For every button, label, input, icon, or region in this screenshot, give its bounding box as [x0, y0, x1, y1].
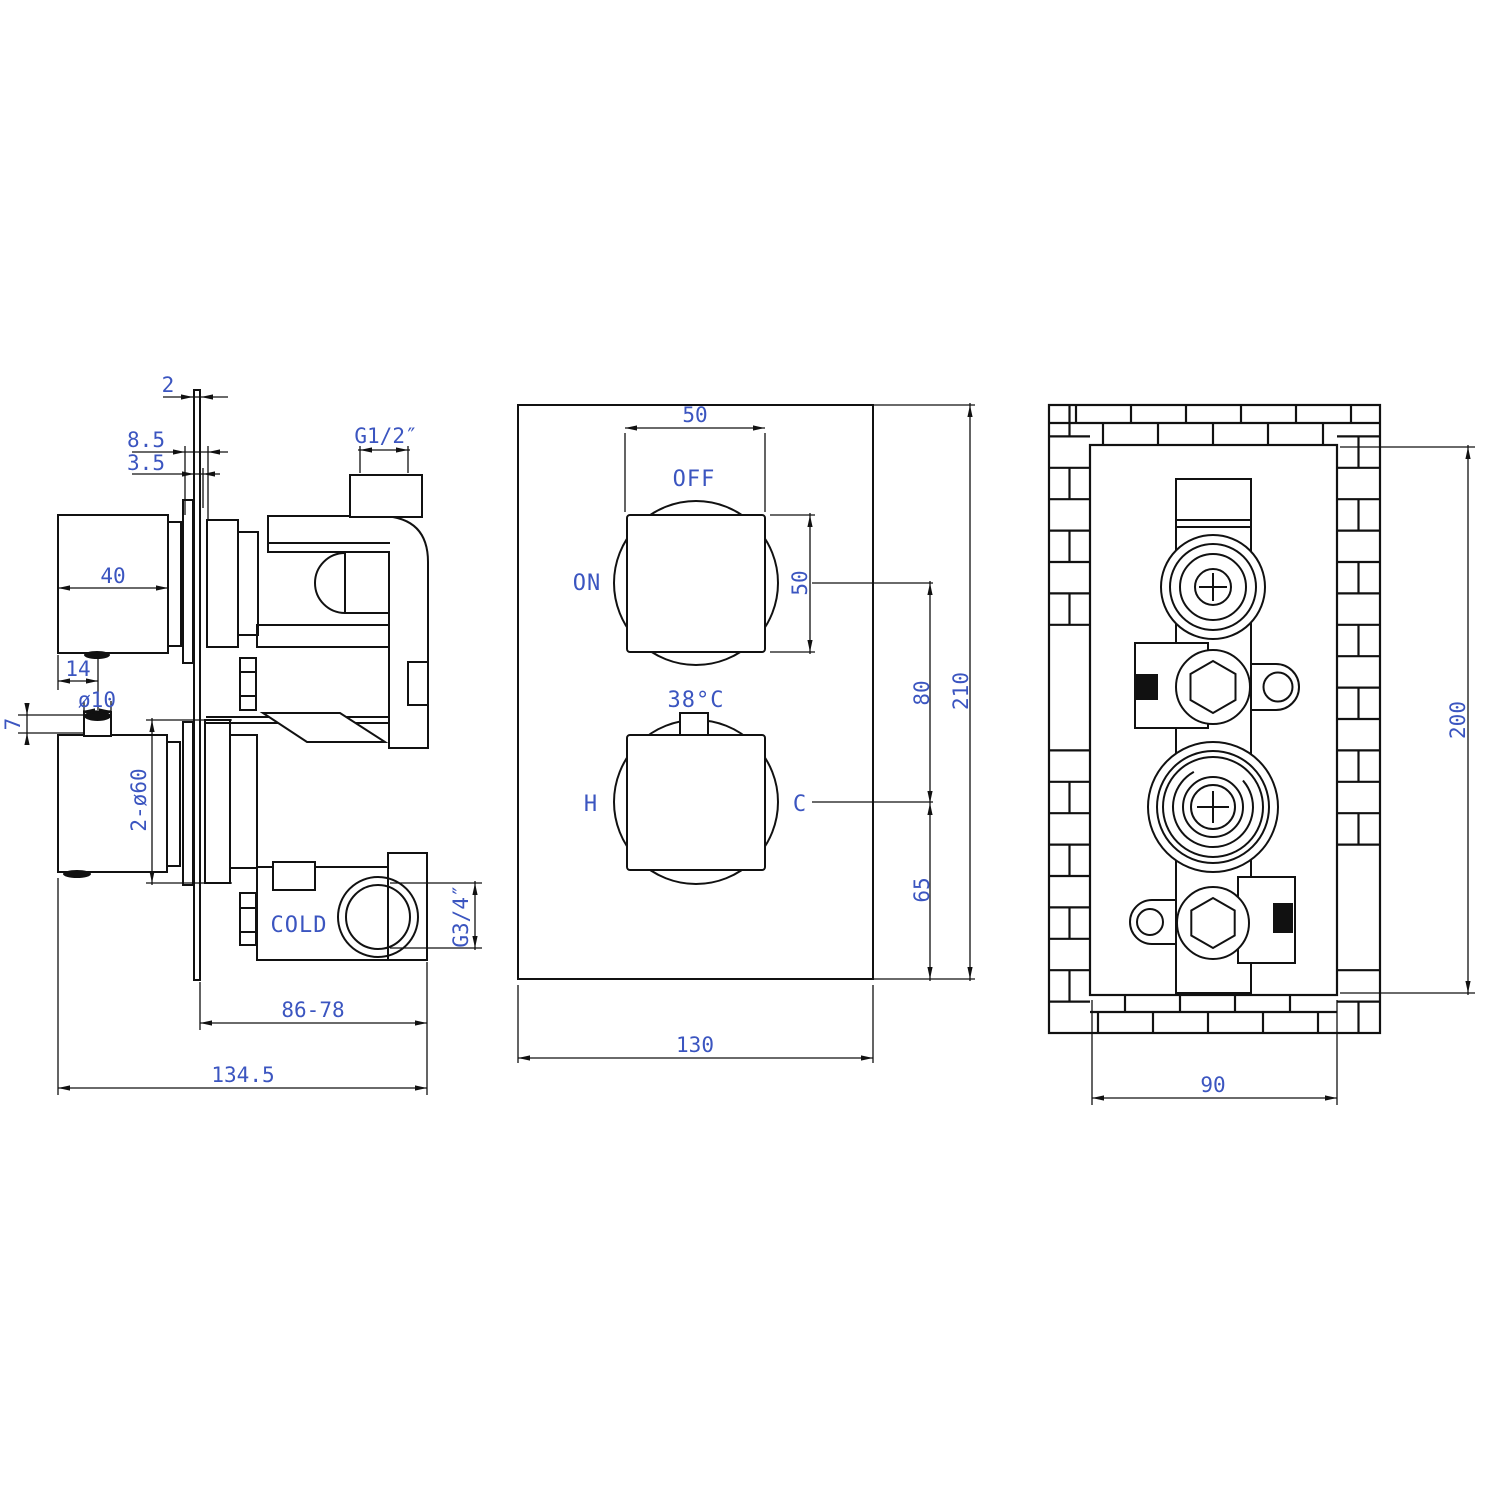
dim-label-3-5: 3.5 [127, 451, 165, 475]
side-top-port [350, 475, 422, 517]
back-mid-port [1176, 650, 1250, 724]
dim-label-50-height: 50 [788, 570, 812, 595]
dim-label-200: 200 [1446, 701, 1470, 739]
dim-label-7: 7 [1, 718, 25, 731]
dim-label-8-5: 8.5 [127, 428, 165, 452]
back-cartridge [1148, 742, 1278, 872]
dim-label-90: 90 [1200, 1073, 1225, 1097]
front-onoff-knob [627, 515, 765, 652]
dim-label-134-5: 134.5 [211, 1063, 274, 1087]
thread-label-g12: G1/2″ [354, 424, 417, 448]
dim-label-40: 40 [100, 564, 125, 588]
thread-label-g34: G3/4″ [449, 884, 473, 947]
cold-inlet-label: COLD [271, 913, 328, 938]
dim-label-80: 80 [910, 680, 934, 705]
hot-label: H [584, 792, 598, 817]
front-view: 50 OFF ON 50 38°C H C 80 65 210 130 [518, 403, 975, 1063]
dim-label-65: 65 [910, 877, 934, 902]
side-hex-nut-cold [240, 893, 256, 945]
temp-label: 38°C [668, 688, 725, 713]
back-top-screw [1161, 535, 1265, 639]
back-view: 200 90 [1049, 405, 1475, 1105]
side-outlet-circle [338, 877, 418, 957]
cold-label: C [793, 792, 807, 817]
dim-label-dia10: ø10 [78, 688, 116, 712]
dim-label-130: 130 [676, 1033, 714, 1057]
on-label: ON [573, 571, 602, 596]
off-label: OFF [673, 467, 716, 492]
dim-label-50-width: 50 [682, 403, 707, 427]
side-view: 2 8.5 3.5 G1/2″ 40 14 ø10 7 2-ø60 COLD G… [1, 373, 482, 1095]
drawing-svg: 2 8.5 3.5 G1/2″ 40 14 ø10 7 2-ø60 COLD G… [0, 0, 1500, 1500]
front-temp-knob [627, 735, 765, 870]
side-hex-nut-mid [240, 658, 256, 710]
dim-label-210: 210 [949, 672, 973, 710]
dim-label-2: 2 [162, 373, 175, 397]
back-bottom-port [1177, 887, 1249, 959]
technical-drawing: 2 8.5 3.5 G1/2″ 40 14 ø10 7 2-ø60 COLD G… [0, 0, 1500, 1500]
dim-label-2-dia60: 2-ø60 [127, 768, 151, 831]
dim-label-86-78: 86-78 [281, 998, 344, 1022]
dim-label-14: 14 [65, 657, 90, 681]
